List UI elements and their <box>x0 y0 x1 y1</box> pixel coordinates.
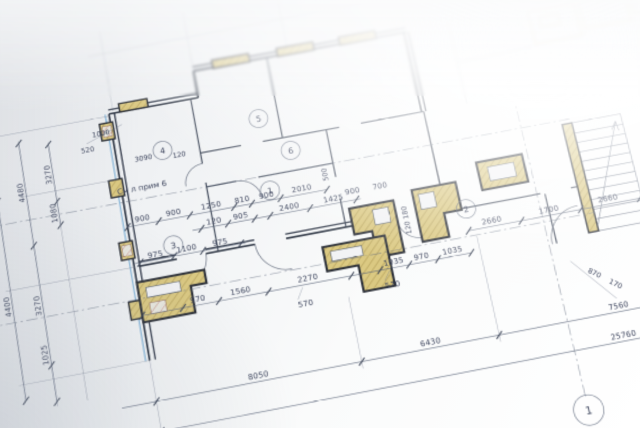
dim-label: 170 <box>608 277 624 290</box>
dim-label: 3090 <box>134 153 153 164</box>
callout-number: 2 <box>462 204 469 215</box>
dim-label: 870 <box>586 267 602 280</box>
dim-chain-e: 2660 1700 2660 <box>463 185 640 235</box>
dim-label: 900 <box>344 185 361 197</box>
dim-label: 900 <box>165 207 182 219</box>
callout-number: 5 <box>255 114 262 124</box>
callout-number: 4 <box>159 145 166 156</box>
paper-plane: В Б 1 <box>0 0 640 428</box>
dim-label: 700 <box>371 180 388 192</box>
washed-rooms <box>445 0 640 104</box>
dim-label: 970 <box>189 293 206 305</box>
callout-number: 1 <box>266 185 273 196</box>
dim-label: 900 <box>134 213 151 225</box>
staircase <box>562 114 640 233</box>
dim-label: 970 <box>413 250 430 262</box>
yellow-piers <box>92 10 546 336</box>
blueprint-photo: В Б 1 <box>0 0 640 428</box>
dim-chain-f: 8050 6430 7560 <box>120 271 640 411</box>
dim-label: 120 <box>403 220 414 234</box>
dim-label: 3270 <box>32 295 44 317</box>
dim-label: 500 <box>320 167 331 181</box>
dim-label: 570 <box>384 279 401 291</box>
dim-chain-left1: 1560 4400 <box>0 137 30 406</box>
dim-label: 3270 <box>42 164 54 185</box>
dim-stair-labels: 870 170 <box>570 253 626 306</box>
dim-label: 25760 <box>610 328 638 342</box>
grid-number: 1 <box>584 405 593 418</box>
utility-line-blue <box>105 115 146 362</box>
dim-chain-g: 25760 <box>125 300 640 428</box>
callout-number: 6 <box>287 145 294 156</box>
witness-lines <box>0 10 640 428</box>
dim-label: 2400 <box>278 201 300 214</box>
dim-chain-b: 120 905 2400 1425 <box>191 189 362 233</box>
dim-label: 520 <box>80 145 94 155</box>
callout-number: 3 <box>170 240 177 251</box>
dim-label: 1025 <box>39 344 51 366</box>
dim-label: 120 <box>172 150 187 160</box>
dim-chain-left3: 3270 1080 <box>39 141 65 230</box>
dim-label: 180 <box>400 205 411 219</box>
grid-axes: В Б 1 <box>0 96 640 428</box>
dim-chain-c: 975 1100 975 <box>132 233 246 267</box>
pier-L-right <box>412 182 467 242</box>
note-text: См л прим 6 <box>117 179 168 197</box>
floor-plan-drawing: В Б 1 <box>0 0 640 428</box>
dim-label: 570 <box>297 298 314 310</box>
dim-label: 1080 <box>48 203 60 224</box>
